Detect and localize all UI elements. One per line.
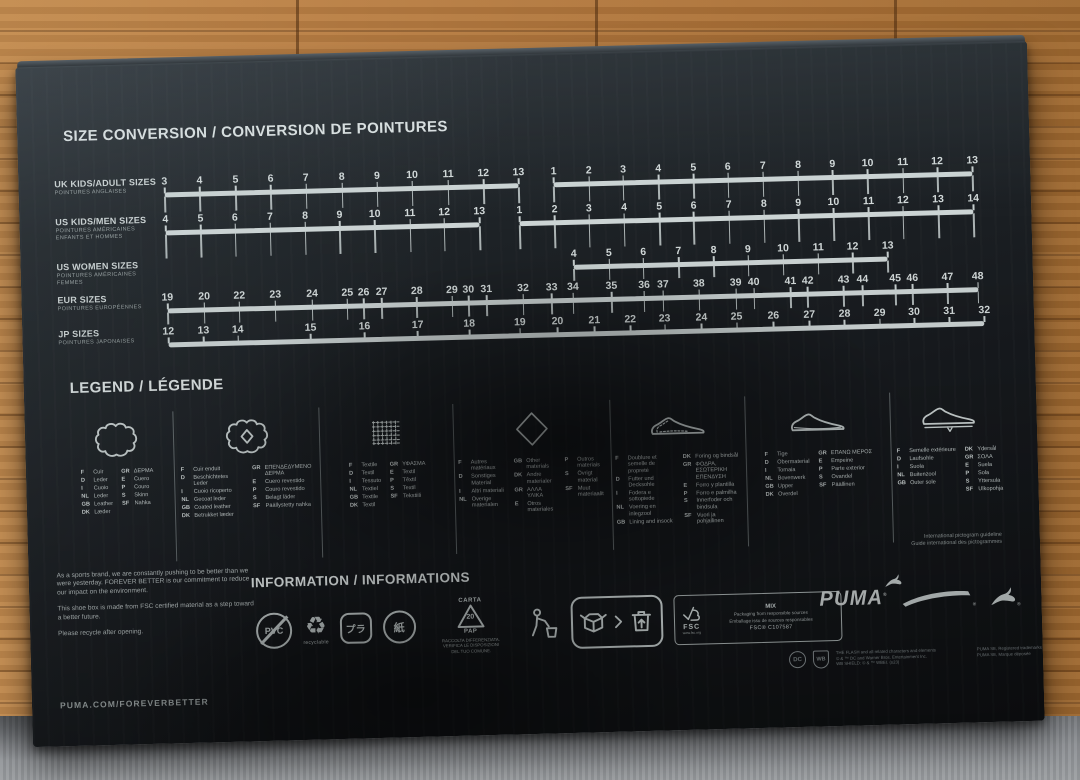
legend-lang-code: NL [616,505,626,518]
size-tick-label: 27 [803,309,815,321]
tick-connector [895,293,897,305]
legend-lang-code: S [684,498,694,511]
legend-lang-code: SF [819,482,829,489]
tick-mark [519,328,521,334]
legend-lang-code: S [122,492,132,499]
legend-lang-code: SF [966,486,976,493]
tick-mark [902,206,904,212]
carton-box-icon [579,610,607,636]
tick-mark [762,172,764,178]
legend-lang-code: GR [683,462,693,481]
size-tick-label: 26 [767,309,779,321]
eco-paragraph-3: Please recycle after opening. [58,625,256,639]
legend-material-text: Forro e palmilha [696,489,737,496]
tick-connector [862,294,864,306]
legend-lang-code: GR [252,465,262,478]
tick-connector [947,292,949,304]
size-tick-label: 36 [638,279,650,291]
legend-entry-group: FAutres matériauxDSonstiges MaterialIAlt… [458,459,506,516]
raccolta-caption: RACCOLTA DIFFERENZIATA. VERIFICA LE DISP… [442,637,500,654]
size-tick-label: 34 [567,281,579,293]
legend-lang-code: DK [766,491,776,498]
tick-mark [735,289,737,295]
size-tick-label: 8 [339,171,345,183]
legend-entry-group: FSemelle extérieureDLaufsohleISuolaNLBui… [897,447,957,494]
jp-paper-recycle-icon: 紙 [382,611,416,645]
pvc-label: PVC [265,625,284,635]
legend-entry-groups: FTigeDObermaterialITomaiaNLBovenwerkGBUp… [760,447,877,498]
legend-material-text: Altri materiali [471,487,503,494]
legend-column: FDoublure et semelle de propretéDFutter … [610,396,749,549]
legend-lang-code: GB [350,494,360,501]
legend-material-text: Futter und Decksohle [628,475,674,489]
legend-material-text: Leather [94,501,113,508]
legend-lang-code: GR [390,461,400,468]
legend-lang-code: E [121,476,131,483]
legend-lang-code: SF [253,503,263,510]
legend-material-text: Belagt läder [265,494,295,501]
tick-mark [164,187,166,193]
legend-entry: DLaufsohle [897,455,956,463]
legend-material-text: Tekstiili [403,493,421,500]
legend-material-text: ΣΟΛΑ [977,454,992,461]
size-tick-label: 12 [162,325,174,337]
legend-entry: ECuero revestido [252,478,315,486]
tick-mark [658,175,660,181]
size-tick-label: 43 [838,274,850,286]
puma-cat-logo: ® [989,584,1021,607]
dc-logo: DC [789,651,806,668]
legend-material-text: Textile [362,494,378,501]
tick-connector [305,193,307,209]
size-tick-label: 7 [760,160,766,172]
jp-plastic-recycle-icon: プラ [339,613,372,645]
tick-connector [748,264,750,276]
legend-material-text: Leder [94,493,108,500]
size-tick-label: 29 [446,284,458,296]
legend-material-text: Laufsohle [909,455,933,462]
size-tick-label: 11 [404,207,415,219]
tick-mark [200,225,202,231]
legend-lang-code: I [897,464,907,471]
legend-entry: SFUlkopohja [966,485,1004,492]
legend-material-text: Sola [978,470,989,477]
legend-material-text: Sonstiges Material [471,473,505,487]
legend-lang-code: SF [122,500,132,507]
legend-lang-code: NL [349,486,359,493]
legend-lang-code: P [122,484,132,491]
tick-mark [936,167,938,173]
legend-entry: ESuela [965,461,1003,468]
legend-column: FTextileDTextilITessutoNLTextielGBTextil… [320,404,457,557]
legend-entry: NLBovenwerk [765,474,810,482]
legend-material-text: ΕΠΑΝΩ ΜΕΡΟΣ [831,449,872,456]
tick-connector [798,180,800,196]
legend-material-text: Voering en inlegzool [629,504,675,518]
legend-entry: FCuir [81,469,113,476]
legend-entry: DSonstiges Material [459,473,506,487]
tick-mark [862,285,864,291]
tick-mark [364,332,366,338]
tick-connector [698,299,700,311]
size-tick-label: 28 [411,285,423,297]
eco-paragraph-2: This shoe box is made from FSC certified… [57,600,255,622]
tick-mark [753,288,755,294]
size-tick-label: 17 [412,319,424,331]
legend-lang-code: E [252,479,262,486]
legend-lang-code: GB [514,458,524,471]
tick-mark [912,284,914,290]
legend-material-text: Couro [134,484,149,491]
legend-material-text: Innerfoder och bindsula [696,497,742,511]
legend-material-text: Muut materiaalit [578,485,607,499]
tick-connector [270,232,272,256]
tick-connector [486,304,488,316]
legend-lang-code: D [81,477,91,484]
tick-mark [204,302,206,308]
legend-column: FAutres matériauxDSonstiges MaterialIAlt… [453,400,614,554]
tick-mark [693,212,695,218]
tick-mark [728,211,730,217]
size-row-label: EUR SIZESPOINTURES EUROPÉENNES [57,293,165,313]
size-tick-label: 5 [197,212,203,224]
tick-connector [551,302,553,314]
legend-entry: DFutter und Decksohle [616,475,675,489]
size-tick-label: 12 [897,194,909,206]
tick-connector [807,296,809,308]
legend-material-text: Lining and insock [629,518,672,526]
tick-mark [551,293,553,299]
legend-lang-code: F [615,456,625,475]
tick-connector [519,225,521,249]
tick-connector [658,184,660,200]
tick-mark [165,225,167,231]
tick-connector [833,217,835,241]
tick-connector [659,222,661,246]
size-tick-label: 39 [730,276,742,288]
legend-lang-code: GR [121,468,131,475]
legend-material-text: Cuero revestido [265,478,305,485]
tick-mark [736,323,738,329]
tick-mark [167,303,169,309]
size-tick-label: 9 [374,170,380,182]
legend-lang-code: SF [684,512,694,525]
legend-entry-groups: FDoublure et semelle de propretéDFutter … [611,450,747,527]
legend-material-text: Cuir [93,469,103,476]
size-tick-label: 5 [690,162,696,174]
legend-lang-code: P [684,490,694,497]
leather-hide-icon [93,412,138,467]
legend-material-text: Cuoio [94,485,109,492]
legend-entry: POutros materiais [565,456,607,470]
tick-connector [573,269,575,281]
tick-mark [713,256,715,262]
legend-lang-code: NL [81,493,91,500]
legend-entry: NLVoering en inlegzool [616,504,675,518]
legend-entry: DKForing og bindsål [683,452,742,460]
legend-entry: DKTextil [350,501,382,508]
legend-material-text: Ulkopohja [978,485,1003,492]
size-tick-label: 4 [162,213,168,225]
tick-connector [938,214,940,238]
tick-connector [448,189,450,205]
eco-paragraph-1: As a sports brand, we are constantly pus… [57,567,256,597]
tick-mark [483,179,485,185]
tick-mark [678,257,680,263]
tick-connector [573,302,575,314]
legend-lang-code: GB [82,501,92,508]
legend-entry: SInnerfoder och bindsula [684,497,743,511]
legend-material-text: Parte exterior [831,465,865,472]
legend-entry: GRΥΦΑΣΜΑ [390,461,426,468]
size-tick-label: 13 [473,205,485,217]
legend-lang-code: S [390,485,400,492]
legend-lang-code: F [181,467,191,474]
legend-lang-code: E [390,469,400,476]
legend-entry: FDoublure et semelle de propreté [615,454,674,475]
size-tick-label: 4 [655,162,661,174]
tick-connector [818,262,820,274]
tick-mark [310,334,312,340]
legend-material-text: Textil [402,469,415,476]
legend-lang-code: DK [965,446,975,453]
tick-mark [868,207,870,213]
legend-lang-code: P [565,457,575,470]
size-tick-label: 11 [812,241,823,253]
legend-entry: DKYdersål [965,446,1003,453]
tick-mark [553,177,555,183]
size-row-label: JP SIZESPOINTURES JAPONAISES [58,327,166,347]
tick-mark [972,166,974,172]
legend-lang-code: D [616,476,626,489]
legend-entry: SFPäällystetty nahka [253,502,316,510]
legend-entry: ICuoio ricoperto [181,488,244,496]
legend-entry: GBCoated leather [182,504,245,512]
legend-entry: DTextil [349,470,381,477]
tick-mark [887,252,889,258]
legend-entry-group: FDoublure et semelle de propretéDFutter … [615,454,675,527]
legend-entry: EForro y plantilla [683,481,742,489]
pap-label: PAP [464,628,478,634]
tick-connector [305,231,307,255]
legend-material-text: ΦΟΔΡΑ, ΕΣΩΤΕΡΙΚΗ ΕΠΕΝΔΥΣΗ [695,460,742,480]
tick-mark [417,331,419,337]
tick-mark [797,171,799,177]
fsc-code: FSC® C107587 [709,624,834,633]
tidyman-icon [525,606,560,641]
size-tick-label: 24 [306,288,318,300]
legend-material-text: Forro y plantilla [696,481,734,488]
tick-mark [237,336,239,342]
legend-entry: NLBuitenzool [897,471,956,479]
tick-connector [764,219,766,243]
tick-mark [451,296,453,302]
legend-material-text: Têxtil [403,477,417,484]
legend-entry: PCouro revestido [253,486,316,494]
tick-mark [234,224,236,230]
legend-material-text: Tessuto [362,478,381,485]
shoebox-back-panel: SIZE CONVERSION / CONVERSION DE POINTURE… [15,41,1044,747]
legend-entry: GRΔΕΡΜΑ [121,468,153,475]
legend-material-text: Ovandel [831,473,852,480]
tick-connector [790,296,792,308]
tick-connector [977,291,979,303]
tick-mark [275,301,277,307]
legend-lang-code: GB [765,483,775,490]
tick-connector [763,181,765,197]
size-tick-label: 6 [640,246,646,258]
legend-lang-code: D [765,460,775,467]
chevron-right-icon [614,614,623,630]
legend-columns: FCuirDLederICuoioNLLederGBLeatherDKLæder… [58,390,1010,565]
tick-mark [902,168,904,174]
fsc-logo: FSC www.fsc.org [681,604,702,635]
tick-mark [879,319,881,325]
dc-text: DC [793,656,802,662]
size-tick-label: 12 [438,206,450,218]
tick-mark [305,184,307,190]
size-tick-label: 3 [161,175,167,187]
tick-connector [912,293,914,305]
legend-material-text: Leder [93,477,107,484]
legend-material-text: Obermaterial [777,459,810,466]
tick-connector [234,233,236,257]
legend-material-text: Textil [403,485,416,492]
legend-entry: ITomaia [765,467,810,475]
tick-mark [727,173,729,179]
size-tick-label: 14 [232,323,244,335]
size-tick-label: 14 [967,192,979,204]
textile-icon [368,405,405,460]
fsc-mix-text: MIX Packaging from responsible sources E… [708,603,834,633]
tick-connector [852,261,854,273]
legend-lang-code: I [616,491,626,504]
legend-entry-group: FCuir enduitDBeschichtetes LederICuoio r… [181,466,245,520]
tick-connector [363,307,365,319]
size-tick-label: 27 [376,286,388,298]
size-tick-label: 11 [442,168,453,180]
size-tick-label: 22 [624,313,636,325]
legend-entry-group: GRΕΠΑΝΩ ΜΕΡΟΣEEmpeinePParte exteriorSOva… [818,449,873,496]
size-tick-label: 30 [908,306,920,318]
puma-wordmark: PUMA® [819,586,888,612]
legend-entry-group: FTigeDObermaterialITomaiaNLBovenwerkGBUp… [764,451,810,498]
legend-lang-code: E [965,462,975,469]
tick-connector [523,303,525,315]
legend-lang-code: F [349,463,359,470]
tick-connector [902,177,904,193]
tick-connector [903,215,905,239]
size-tick-label: 5 [656,200,662,212]
legend-lang-code: F [81,470,91,477]
outsole-icon [919,390,978,445]
legend-entry: NLGecoat leder [181,496,244,504]
tick-mark [867,169,869,175]
legend-entry: DLeder [81,477,113,484]
size-tick-label: 8 [302,210,308,222]
tick-mark [341,183,343,189]
size-row: UK KIDS/ADULT SIZESPOINTURES ANGLAISES34… [18,153,1030,179]
legend-entry: NLTextiel [349,486,381,493]
tick-connector [204,311,206,323]
size-tick-label: 4 [621,201,627,213]
legend-entry: PSola [965,469,1003,476]
size-tick-label: 10 [827,196,839,208]
tick-mark [409,219,411,225]
tick-mark [416,297,418,303]
registered-mark: ® [883,592,888,597]
tick-mark [376,182,378,188]
tick-mark [630,325,632,331]
legend-material-text: Cuir enduit [193,466,220,473]
tick-connector [164,196,166,212]
tick-mark [305,222,307,228]
size-tick-label: 8 [710,244,716,256]
tick-connector [518,187,520,203]
tick-connector [728,220,730,244]
tick-mark [701,323,703,329]
legend-lang-code: P [819,466,829,473]
legend-material-text: Empeine [831,457,853,464]
tick-connector [589,223,591,247]
legend-lang-code: S [819,474,829,481]
size-tick-label: 7 [267,211,273,223]
kami-label: 紙 [393,619,404,635]
size-tick-label: 45 [889,272,901,284]
legend-entry: ECuero [121,476,153,483]
legend-entry: DKLæder [82,508,114,515]
tick-connector [973,213,975,237]
formstrip-logo: ® [900,585,976,608]
legend-entry: GRΣΟΛΑ [965,454,1003,461]
recyclable-label: recyclable [303,639,329,646]
legend-material-text: ΔΕΡΜΑ [134,468,154,475]
pictogram-guideline-note: International pictogram guideline Guide … [911,532,1002,548]
tick-connector [275,310,277,322]
tick-mark [347,299,349,305]
coated-leather-icon [224,409,269,464]
tick-connector [753,297,755,309]
legend-material-text: Suela [978,462,992,469]
tick-connector [483,188,485,204]
tick-connector [381,307,383,319]
tick-mark [363,298,365,304]
fsc-url: www.fsc.org [683,631,701,635]
tick-connector [270,194,272,210]
legend-material-text: Outros materiais [577,456,606,470]
legend-entry: SFVuori ja pohjallinen [684,511,743,525]
tick-connector [713,265,715,277]
tick-mark [572,293,574,299]
tick-mark [937,205,939,211]
tick-mark [168,337,170,343]
legend-entry: SFNahka [122,500,154,507]
legend-lang-code: S [565,471,575,484]
legend-material-text: Ydersål [977,446,996,453]
tick-mark [798,209,800,215]
registered-mark: ® [973,601,976,606]
size-tick-label: 28 [838,308,850,320]
legend-material-text: Yttersula [978,477,1000,484]
legend-material-text: Päällystetty nahka [266,502,312,510]
legend-entry-group: DKYdersålGRΣΟΛΑESuelaPSolaSYttersulaSFUl… [965,446,1004,493]
tick-connector [554,224,556,248]
tick-mark [518,178,520,184]
legend-lang-code: GR [818,450,828,457]
legend-material-text: Buitenzool [910,471,936,478]
flash-credit: THE FLASH and all related characters and… [836,647,954,667]
tick-mark [573,260,575,266]
